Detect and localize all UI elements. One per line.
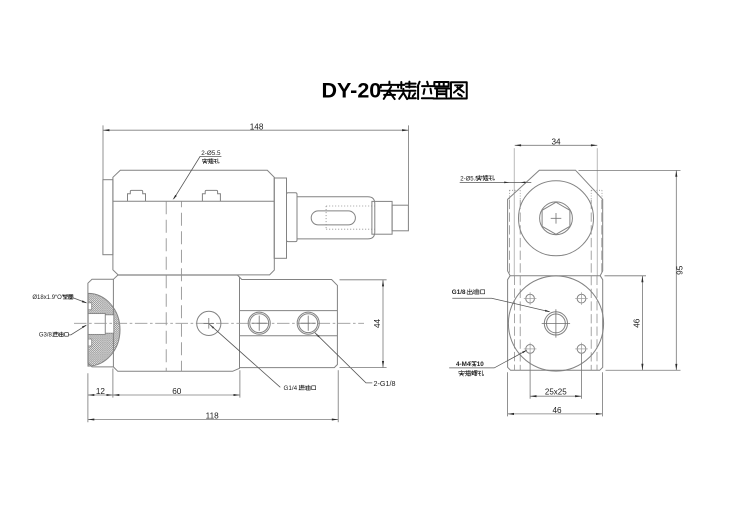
svg-text:148: 148: [250, 122, 264, 131]
svg-text:25x25: 25x25: [545, 387, 567, 396]
svg-text:DY-20: DY-20: [322, 78, 382, 102]
svg-text:2-G1/8: 2-G1/8: [374, 379, 396, 388]
svg-text:46: 46: [633, 318, 642, 328]
svg-text:44: 44: [373, 319, 382, 329]
svg-text:118: 118: [206, 412, 219, 421]
svg-text:34: 34: [551, 138, 561, 147]
svg-text:95: 95: [676, 265, 685, 275]
svg-text:4-M4: 4-M4: [456, 361, 471, 368]
svg-text:Ø18x1.9“O”: Ø18x1.9“O”: [32, 295, 63, 301]
svg-text:46: 46: [552, 406, 562, 415]
svg-text:G1/4: G1/4: [284, 385, 298, 392]
svg-text:2-Ø5.5: 2-Ø5.5: [201, 150, 221, 157]
svg-text:12: 12: [96, 387, 106, 396]
svg-text:G3/8: G3/8: [39, 333, 53, 339]
svg-text:G1/8: G1/8: [452, 289, 466, 296]
svg-text:10: 10: [477, 361, 485, 368]
svg-text:60: 60: [172, 387, 182, 396]
